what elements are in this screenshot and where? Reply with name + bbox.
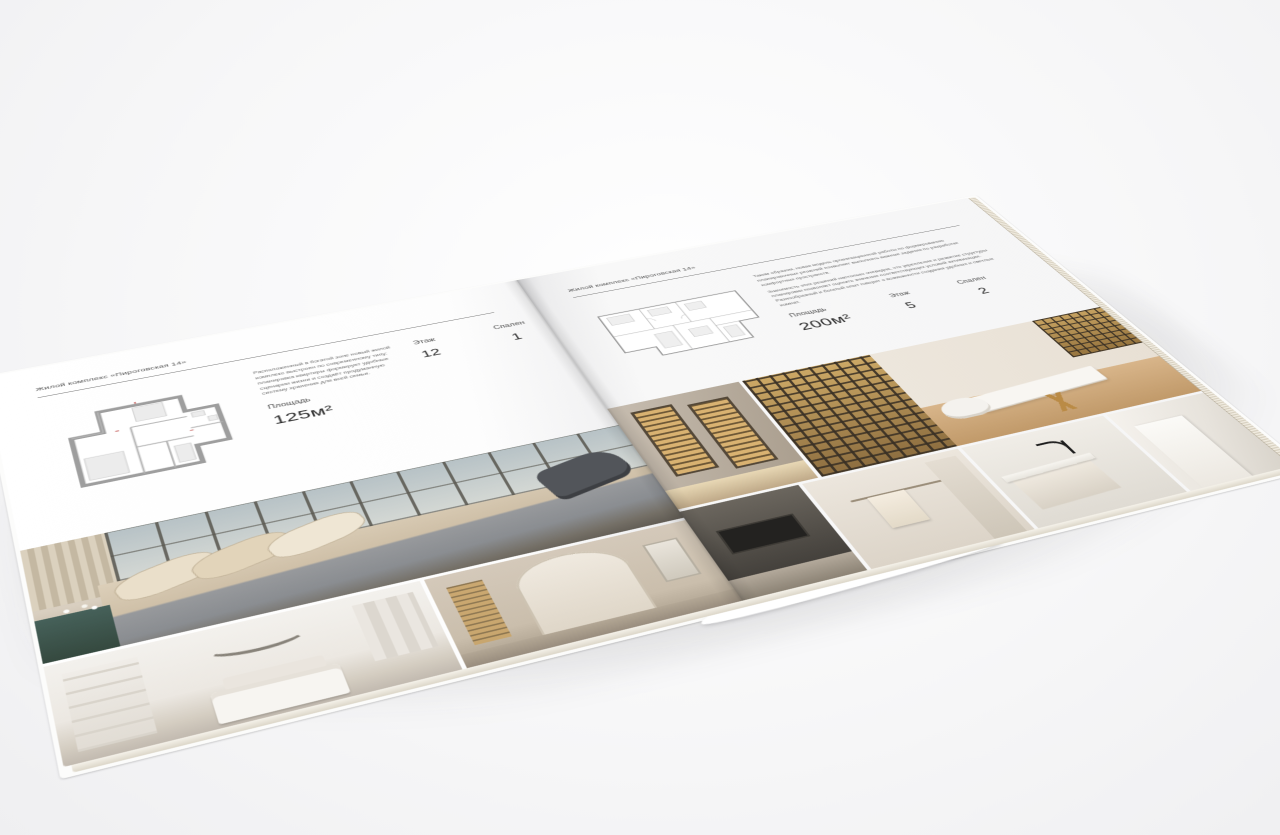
shelving [62, 657, 157, 752]
wardrobe [351, 592, 438, 662]
right-spec-floor: Этаж 5 [888, 291, 925, 312]
mirror [642, 537, 702, 582]
left-floor-label: Этаж [412, 337, 436, 346]
floor-plan-125-svg [39, 375, 265, 497]
brochure-spread: Жилой комплекс «Пироговская 14» [0, 198, 1280, 767]
left-text-column: Расположенный в богатой зоне новый жилой… [253, 345, 437, 454]
right-floor-label: Этаж [888, 291, 912, 299]
towel [867, 489, 930, 528]
right-bedrooms-label: Спален [956, 276, 988, 286]
right-bedrooms-value: 2 [965, 284, 1002, 298]
right-area-block: Площадь 200м² [788, 304, 856, 333]
right-floor-value: 5 [897, 299, 925, 312]
left-bedrooms-label: Спален [492, 320, 526, 331]
right-spec-bedrooms: Спален 2 [956, 276, 1002, 298]
left-bedrooms-value: 1 [498, 329, 535, 344]
hob [716, 513, 811, 554]
floor-plan-125 [39, 375, 266, 500]
gold-shelves [446, 580, 512, 646]
floor-plan-200 [580, 278, 793, 376]
left-floor-value: 12 [417, 346, 444, 360]
island-base [1012, 460, 1122, 510]
black-faucet [1036, 439, 1077, 459]
wall-garland [203, 621, 308, 662]
floor-plan-200-svg [580, 278, 791, 374]
